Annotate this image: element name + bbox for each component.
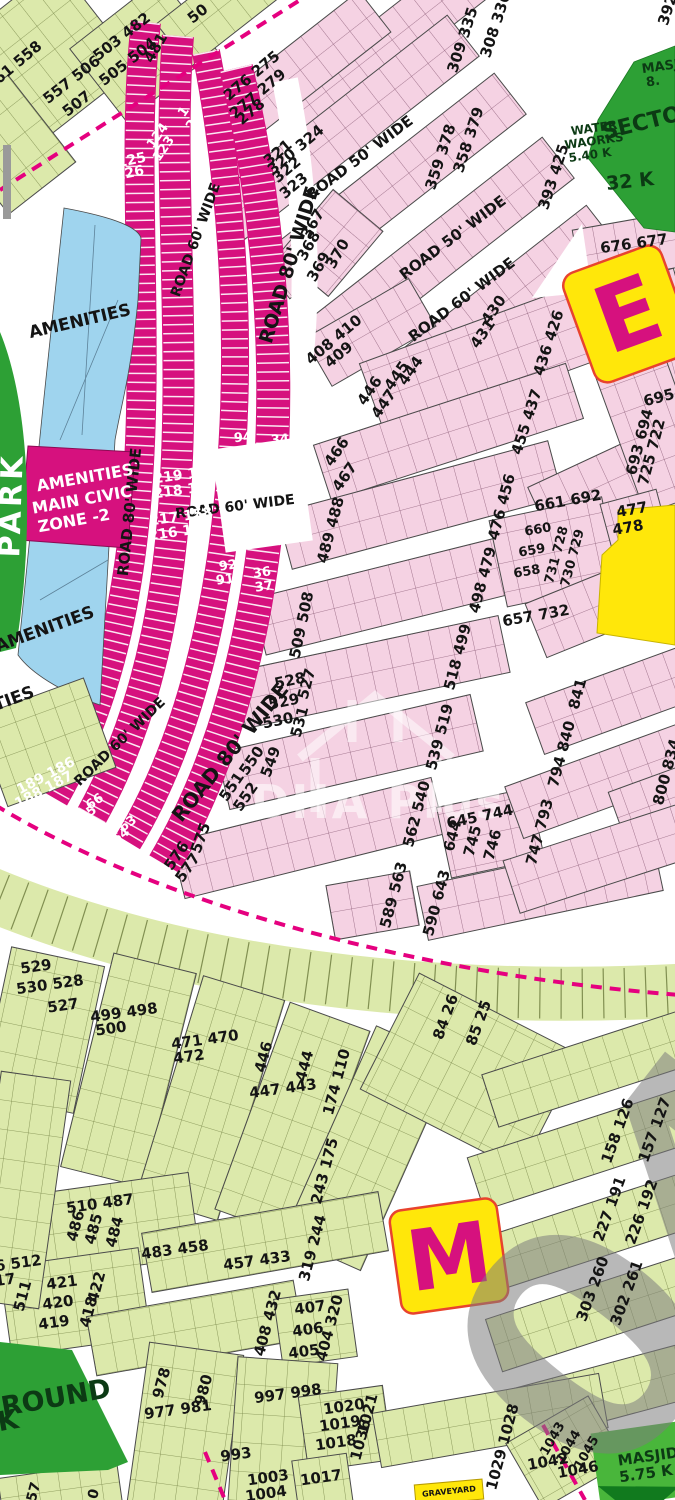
- gray-bar: [3, 145, 11, 219]
- dha-watermark-text: DHA Plus: [251, 775, 505, 829]
- road-gap: [211, 437, 313, 552]
- civic-zone-block: [20, 446, 135, 548]
- plot-map: E M 04 DHA Plus ROAD 50' WIDEROAD 50' WI…: [0, 0, 675, 1500]
